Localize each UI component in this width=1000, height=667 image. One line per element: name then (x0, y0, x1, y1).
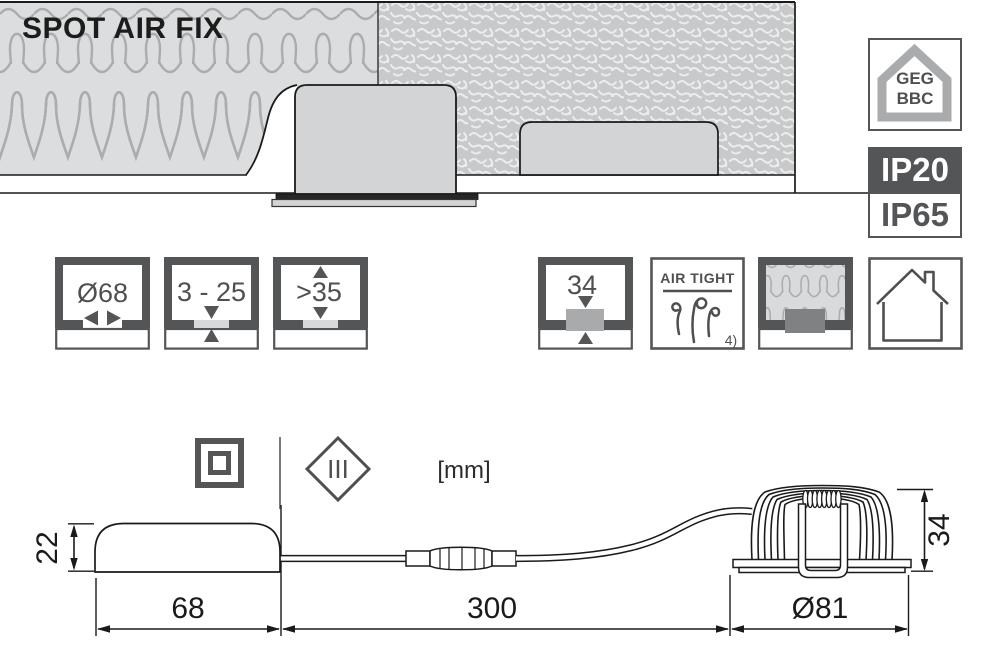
cable-right (516, 511, 752, 559)
ip20-badge: IP20 (868, 147, 962, 192)
dim-81: Ø81 (731, 592, 908, 633)
dim-68: 68 (97, 592, 280, 633)
spot-air-fix-housing (295, 85, 456, 194)
ip65-badge: IP65 (868, 192, 962, 238)
arrow-right (107, 311, 121, 326)
spring-coil (803, 491, 841, 508)
air-tight-label: AIR TIGHT (660, 270, 735, 286)
cable-connector (406, 547, 516, 570)
geg-bbc-badge: GEG BBC (868, 38, 962, 131)
geg-label: GEG (870, 70, 960, 87)
height-value: 34 (567, 270, 597, 300)
thickness-value: 3 - 25 (177, 277, 246, 307)
ceiling-thickness-icon: 3 - 25 (164, 257, 259, 350)
air-tight-footnote: 4) (725, 332, 737, 348)
insulation-contact-icon (758, 257, 853, 350)
bbc-label: BBC (870, 90, 960, 107)
spot-luminaire (733, 486, 911, 578)
trim-ring-light (272, 200, 476, 207)
indoor-use-icon (868, 257, 963, 350)
driver-width-value: 68 (171, 592, 204, 625)
arrow-left (84, 311, 98, 326)
recess-depth-icon: >35 (273, 257, 368, 350)
dim-300: 300 (282, 592, 729, 633)
dim-34: 34 (921, 490, 956, 572)
depth-value: >35 (296, 277, 342, 307)
flat-housing-box (520, 122, 718, 175)
spot-diameter-value: Ø81 (792, 592, 849, 625)
air-tight-icon: AIR TIGHT 4) (650, 257, 745, 350)
trim-ring-dark (276, 194, 478, 200)
driver-height-value: 22 (31, 531, 64, 564)
dimension-drawing: 22 68 300 Ø81 34 (0, 455, 1000, 667)
height-above-ceiling-icon: 34 (538, 257, 633, 350)
driver-box (95, 524, 280, 573)
cutout-value: Ø68 (77, 278, 128, 308)
page-title: SPOT AIR FIX (22, 12, 224, 46)
cutout-diameter-icon: Ø68 (55, 257, 150, 350)
dim-22: 22 (31, 525, 78, 571)
cable-length-value: 300 (467, 592, 517, 625)
spot-height-value: 34 (923, 513, 956, 546)
